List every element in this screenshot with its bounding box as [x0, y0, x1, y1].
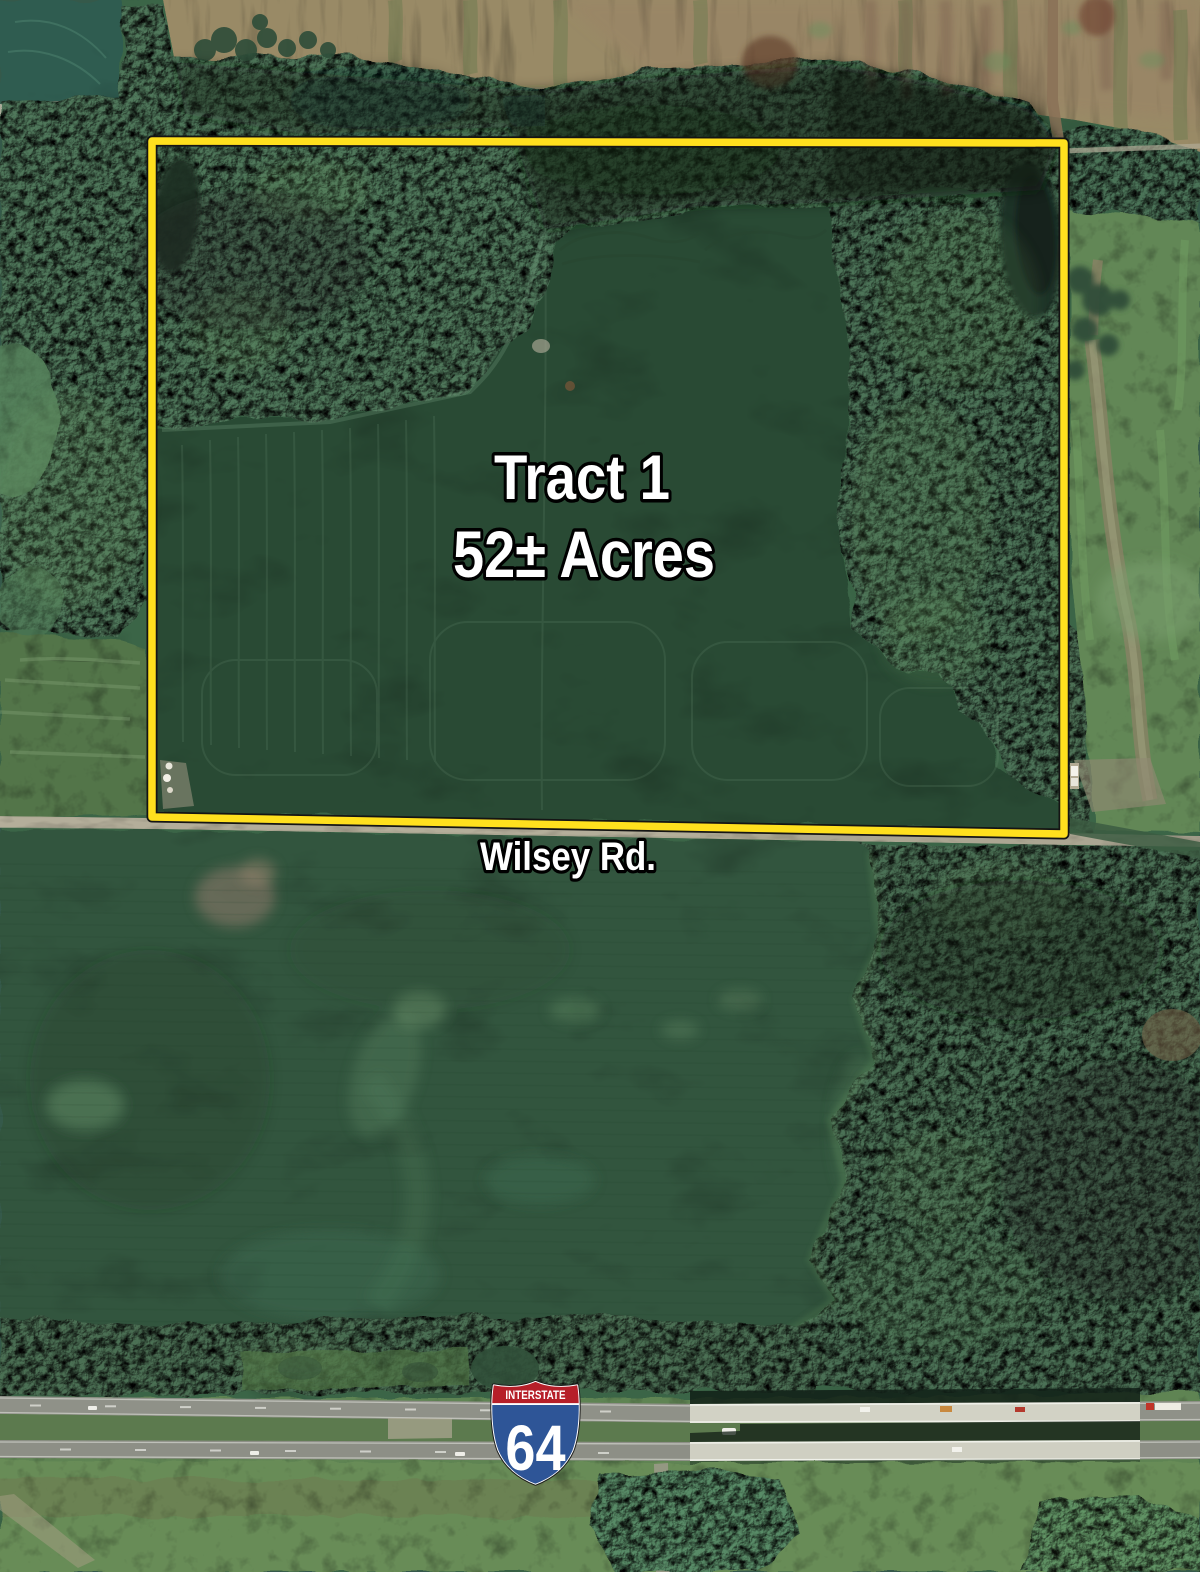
svg-text:Wilsey Rd.: Wilsey Rd. [480, 835, 656, 879]
svg-text:INTERSTATE: INTERSTATE [505, 1389, 565, 1402]
svg-text:64: 64 [505, 1412, 565, 1484]
svg-text:Tract 1: Tract 1 [494, 443, 670, 513]
svg-text:52± Acres: 52± Acres [453, 517, 715, 591]
